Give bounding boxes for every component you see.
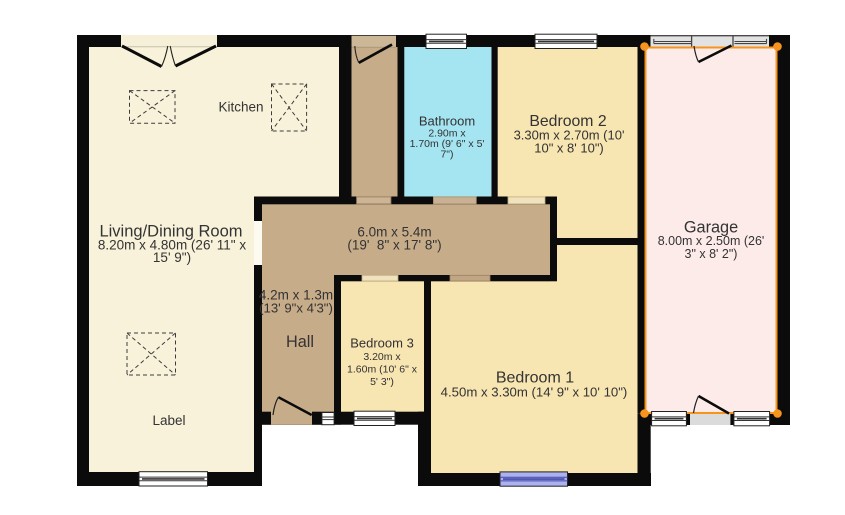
svg-text:(13' 9"x 4'3"): (13' 9"x 4'3") bbox=[259, 301, 333, 316]
svg-text:(19' 8" x 17' 8"): (19' 8" x 17' 8") bbox=[347, 238, 441, 253]
svg-text:Bathroom: Bathroom bbox=[419, 114, 475, 129]
svg-text:5' 3"): 5' 3") bbox=[370, 376, 394, 388]
svg-text:Label: Label bbox=[152, 413, 185, 428]
svg-text:7"): 7") bbox=[440, 149, 453, 161]
svg-text:Bedroom 3: Bedroom 3 bbox=[350, 336, 414, 351]
svg-text:3.20m x: 3.20m x bbox=[363, 351, 401, 363]
svg-text:1.60m (10' 6" x: 1.60m (10' 6" x bbox=[347, 364, 418, 376]
svg-text:Kitchen: Kitchen bbox=[218, 100, 263, 115]
svg-text:3" x 8' 2"): 3" x 8' 2") bbox=[685, 247, 738, 261]
svg-text:15' 9"): 15' 9") bbox=[153, 250, 191, 265]
svg-text:8.00m x 2.50m (26': 8.00m x 2.50m (26' bbox=[658, 234, 765, 248]
svg-text:Hall: Hall bbox=[286, 333, 314, 351]
svg-text:10" x 8' 10"): 10" x 8' 10") bbox=[534, 141, 604, 156]
svg-text:4.50m x 3.30m (14' 9" x 10' 10: 4.50m x 3.30m (14' 9" x 10' 10") bbox=[441, 385, 628, 400]
